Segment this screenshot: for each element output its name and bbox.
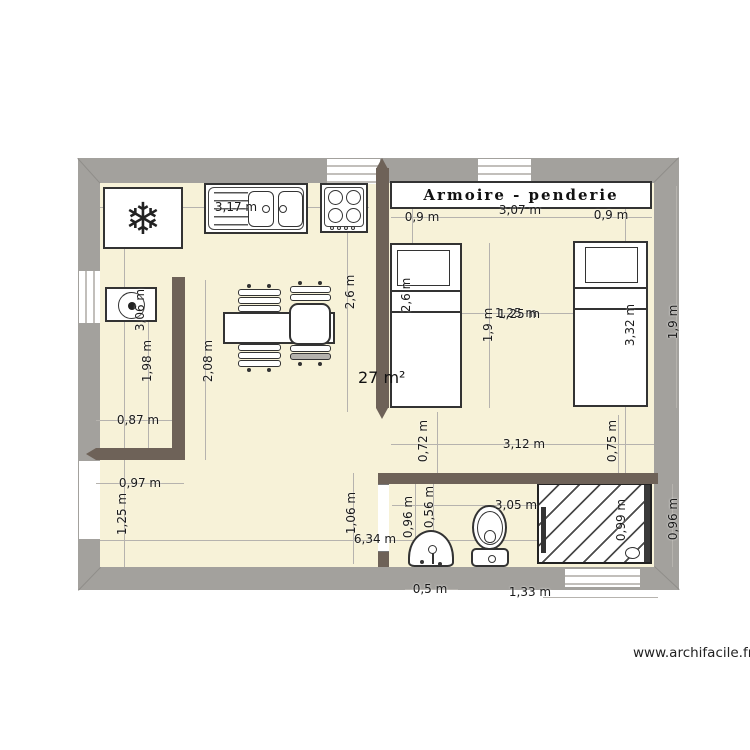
window-opening[interactable] <box>327 159 380 184</box>
dimension-label: 0,97 m <box>119 476 161 490</box>
basin-dot <box>438 562 442 566</box>
snowflake-icon: ❄ <box>105 191 181 249</box>
floor-plan-canvas: ❄ <box>0 0 750 750</box>
bathroom-wall-stub <box>378 552 389 567</box>
room-area-label: 27 m² <box>358 368 405 387</box>
chair[interactable] <box>290 345 331 369</box>
dimension-label: 0,96 m <box>401 496 415 538</box>
chair-foot <box>298 281 302 285</box>
dimension-label: 1,06 m <box>344 492 358 534</box>
chair-slat <box>290 286 331 293</box>
dimension-line <box>676 186 677 408</box>
toilet-tank[interactable] <box>471 548 509 567</box>
dimension-label: 3,12 m <box>503 437 545 451</box>
chair-foot <box>247 284 251 288</box>
dimension-label: 1,9 m <box>481 308 495 343</box>
watermark: www.archifacile.fr <box>633 645 750 661</box>
wardrobe-label: Armoire - penderie <box>392 186 650 204</box>
chair-foot <box>318 362 322 366</box>
faucet-knob <box>262 205 270 213</box>
pillow <box>585 247 638 283</box>
dimension-line <box>437 412 438 473</box>
shower-door <box>541 507 546 553</box>
window-opening[interactable] <box>79 271 100 323</box>
dimension-label: 0,9 m <box>405 210 440 224</box>
dimension-label: 0,56 m <box>422 486 436 528</box>
chair[interactable] <box>238 288 281 313</box>
chair-foot <box>247 368 251 372</box>
shower-edge <box>644 485 650 562</box>
dimension-label: 0,96 m <box>666 498 680 540</box>
dimension-label: 2,6 m <box>343 275 357 310</box>
bathroom-wall-top[interactable] <box>378 473 658 484</box>
dimension-label: 3,07 m <box>499 203 541 217</box>
faucet-stem <box>432 553 434 564</box>
hob-knob <box>351 226 355 230</box>
armchair[interactable] <box>289 303 331 345</box>
dimension-label: 1,25 m <box>115 493 129 535</box>
dimension-label: 3,17 m <box>215 200 257 214</box>
stove-hob[interactable] <box>320 183 368 233</box>
shower-drain <box>625 547 640 559</box>
dimension-label: 0,9 m <box>594 208 629 222</box>
dimension-label: 0,5 m <box>413 582 448 596</box>
toilet-drain <box>484 530 496 543</box>
partition-wall-tip <box>376 408 388 419</box>
chair-foot <box>267 368 271 372</box>
chair-foot <box>298 362 302 366</box>
dimension-label: 2,08 m <box>201 340 215 382</box>
dimension-label: 0,99 m <box>614 499 628 541</box>
chair-slat <box>238 352 281 359</box>
burner <box>328 208 343 223</box>
dimension-label: 2,6 m <box>399 278 413 313</box>
dimension-label: 3,05 m <box>495 498 537 512</box>
chair-slat <box>238 344 281 351</box>
chair[interactable] <box>238 344 281 370</box>
chair-foot <box>267 284 271 288</box>
dimension-label: 0,72 m <box>416 420 430 462</box>
dimension-label: 0,75 m <box>605 420 619 462</box>
hob-knob <box>330 226 334 230</box>
chair-slat <box>290 294 331 301</box>
burner <box>346 208 361 223</box>
hob-knob <box>337 226 341 230</box>
faucet-knob <box>279 205 287 213</box>
partition-wall-kitchen-horizontal[interactable] <box>96 448 185 460</box>
dimension-line <box>543 597 658 598</box>
partition-wall-kitchen-vertical[interactable] <box>172 277 185 448</box>
window-opening[interactable] <box>565 569 640 587</box>
dimension-label: 3,32 m <box>623 304 637 346</box>
dimension-label: 1,25 m <box>498 307 540 321</box>
chair-slat <box>290 353 331 360</box>
dimension-label: 6,34 m <box>354 532 396 546</box>
dimension-label: 0,87 m <box>117 413 159 427</box>
basin-dot <box>420 560 424 564</box>
washing-machine[interactable] <box>105 287 157 322</box>
chair[interactable] <box>290 285 331 302</box>
chair-slat <box>238 297 281 304</box>
chair-slat <box>238 305 281 312</box>
burner <box>328 190 343 205</box>
dimension-label: 1,9 m <box>666 305 680 340</box>
dimension-label: 1,33 m <box>509 585 551 599</box>
chair-foot <box>318 281 322 285</box>
dimension-label: 3,06 m <box>133 289 147 331</box>
flush-button <box>488 555 496 563</box>
shower[interactable] <box>537 483 652 564</box>
chair-slat <box>238 360 281 367</box>
bed-blanket-line <box>575 287 646 289</box>
hob-knob <box>344 226 348 230</box>
dimension-label: 1,98 m <box>140 340 154 382</box>
partition-wall-tip <box>86 448 96 460</box>
door-opening[interactable] <box>79 461 100 539</box>
chair-slat <box>290 345 331 352</box>
chair-slat <box>238 289 281 296</box>
fridge[interactable]: ❄ <box>103 187 183 249</box>
burner <box>346 190 361 205</box>
